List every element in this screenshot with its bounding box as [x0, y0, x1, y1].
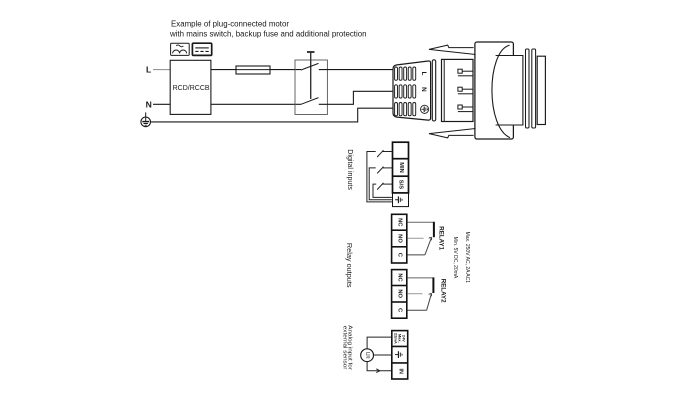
svg-text:U/I: U/I — [364, 352, 370, 359]
svg-text:with mains switch, backup fuse: with mains switch, backup fuse and addit… — [169, 29, 367, 38]
svg-text:N: N — [146, 100, 152, 110]
svg-text:N: N — [420, 87, 427, 92]
svg-text:NC: NC — [396, 273, 402, 282]
svg-text:22mA: 22mA — [393, 333, 398, 344]
svg-text:RELAY2: RELAY2 — [439, 279, 446, 303]
svg-text:RCD/RCCB: RCD/RCCB — [173, 85, 210, 92]
svg-text:NO: NO — [396, 234, 402, 243]
svg-text:L: L — [420, 72, 427, 76]
svg-text:external sensor: external sensor — [342, 326, 347, 370]
svg-text:NO: NO — [396, 289, 402, 298]
svg-text:NC: NC — [396, 218, 402, 227]
svg-text:IN: IN — [398, 368, 404, 373]
svg-text:RELAY1: RELAY1 — [437, 226, 444, 250]
svg-text:L: L — [146, 64, 151, 74]
svg-text:Digital inputs: Digital inputs — [346, 149, 354, 190]
svg-text:S/S: S/S — [398, 180, 404, 189]
svg-text:Relay outputs: Relay outputs — [345, 243, 354, 288]
svg-text:Max. 250V AC, 2A AC1: Max. 250V AC, 2A AC1 — [464, 232, 470, 284]
svg-text:Example of plug-connected moto: Example of plug-connected motor — [171, 20, 289, 29]
svg-text:Min. 5V DC, 20mA: Min. 5V DC, 20mA — [452, 237, 458, 279]
svg-text:MIN: MIN — [398, 162, 404, 173]
